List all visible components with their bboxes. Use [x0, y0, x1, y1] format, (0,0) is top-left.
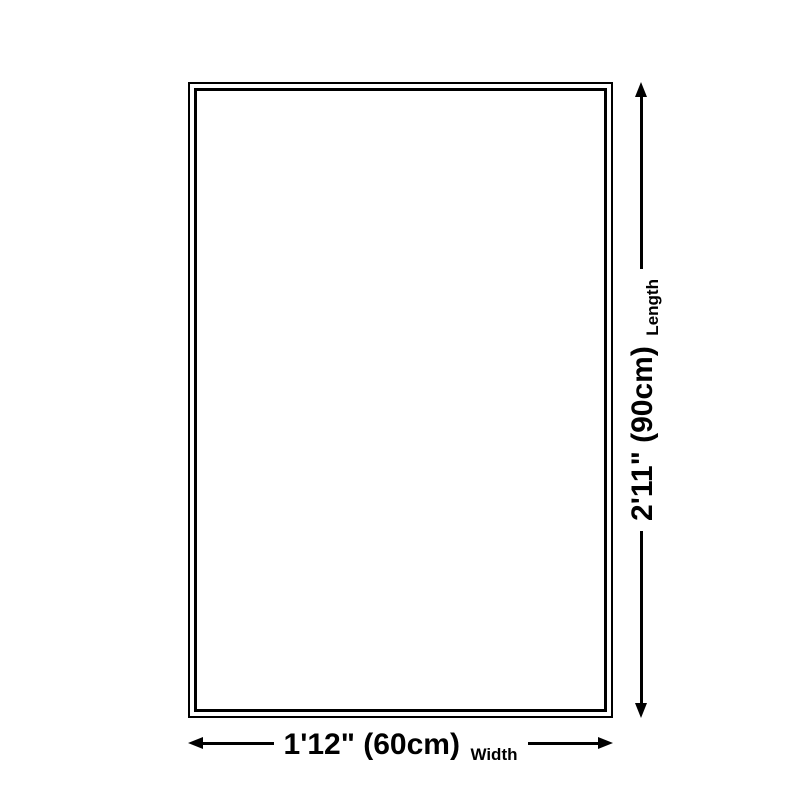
length-label: Length — [643, 279, 663, 336]
width-dimension-line — [203, 742, 274, 745]
rug-outline — [188, 82, 613, 718]
length-dimension-arrow: 2'11" (90cm) Length — [624, 82, 658, 718]
arrow-right-icon — [598, 737, 613, 749]
length-dimension-text: 2'11" (90cm) Length — [624, 269, 658, 531]
arrow-up-icon — [635, 82, 647, 97]
rug-outline-inner-border — [194, 88, 607, 712]
width-value: 1'12" (60cm) — [284, 728, 460, 762]
width-dimension-line — [528, 742, 599, 745]
dimension-diagram: 2'11" (90cm) Length 1'12" (60cm) Width — [0, 0, 800, 800]
arrow-down-icon — [635, 703, 647, 718]
length-dimension-line — [640, 531, 643, 703]
length-value: 2'11" (90cm) — [626, 346, 660, 521]
width-dimension-arrow: 1'12" (60cm) Width — [188, 726, 613, 760]
width-label: Width — [470, 745, 517, 765]
width-dimension-text: 1'12" (60cm) Width — [274, 726, 528, 760]
length-dimension-line — [640, 97, 643, 269]
arrow-left-icon — [188, 737, 203, 749]
